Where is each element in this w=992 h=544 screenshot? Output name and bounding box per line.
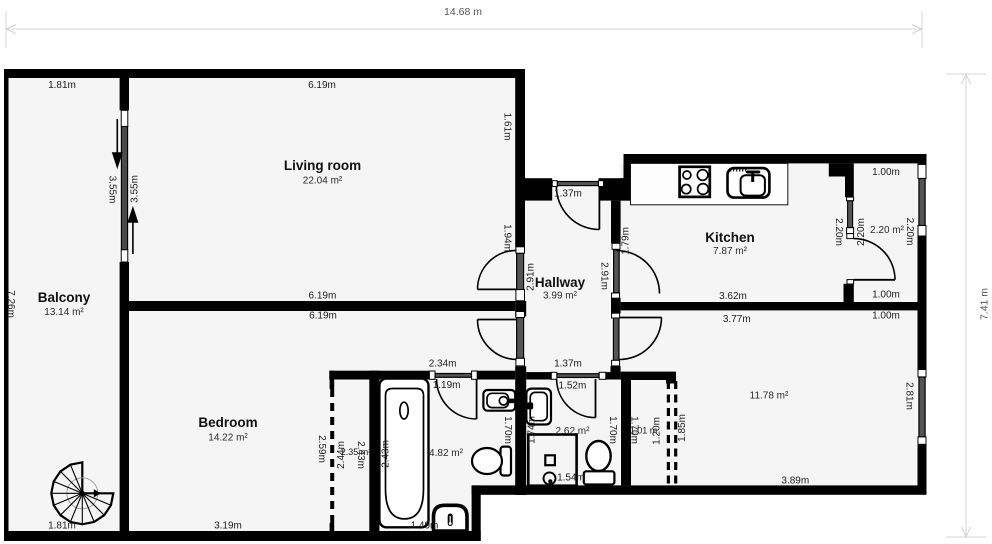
- svg-text:1.74m: 1.74m: [527, 416, 538, 444]
- svg-text:1.70m: 1.70m: [607, 416, 618, 444]
- svg-text:1.00m: 1.00m: [872, 290, 900, 301]
- svg-text:3.55m: 3.55m: [107, 176, 118, 204]
- svg-text:3.19m: 3.19m: [214, 521, 242, 532]
- svg-text:2.43m: 2.43m: [355, 441, 366, 469]
- svg-text:2.59m: 2.59m: [316, 435, 327, 463]
- svg-text:1.52m: 1.52m: [559, 380, 587, 391]
- svg-text:2.81m: 2.81m: [904, 382, 915, 410]
- svg-text:3.62m: 3.62m: [719, 291, 747, 302]
- svg-text:2.20m: 2.20m: [856, 218, 867, 246]
- svg-text:14.68 m: 14.68 m: [444, 6, 482, 18]
- svg-text:1.20m: 1.20m: [652, 417, 663, 445]
- svg-text:7.41 m: 7.41 m: [979, 288, 991, 320]
- svg-text:7.26m: 7.26m: [5, 290, 16, 318]
- svg-text:2.43m: 2.43m: [381, 440, 392, 468]
- svg-text:1.00m: 1.00m: [872, 311, 900, 322]
- svg-text:3.55m: 3.55m: [130, 175, 141, 203]
- svg-text:2.34m: 2.34m: [429, 359, 457, 370]
- svg-text:6.19m: 6.19m: [309, 311, 337, 322]
- svg-text:3.89m: 3.89m: [781, 476, 809, 487]
- svg-text:22.04 m²: 22.04 m²: [303, 176, 343, 187]
- svg-text:1.19m: 1.19m: [433, 380, 461, 391]
- svg-text:2.44m: 2.44m: [336, 441, 347, 469]
- svg-text:Kitchen: Kitchen: [705, 230, 755, 245]
- svg-text:1.61m: 1.61m: [502, 113, 513, 141]
- svg-text:7.87 m²: 7.87 m²: [713, 246, 748, 257]
- svg-text:2.91m: 2.91m: [599, 262, 610, 290]
- svg-text:3.77m: 3.77m: [723, 314, 751, 325]
- svg-text:6.19m: 6.19m: [309, 291, 337, 302]
- svg-text:11.78 m²: 11.78 m²: [750, 391, 789, 402]
- svg-text:14.22 m²: 14.22 m²: [208, 433, 248, 444]
- svg-text:1.70m: 1.70m: [502, 416, 513, 444]
- svg-text:1.70m: 1.70m: [629, 416, 640, 444]
- svg-text:1.81m: 1.81m: [48, 521, 76, 532]
- svg-text:3.99 m²: 3.99 m²: [543, 291, 578, 302]
- svg-text:2.20m: 2.20m: [833, 218, 844, 246]
- svg-text:2.20 m²: 2.20 m²: [870, 225, 905, 236]
- svg-text:1.85m: 1.85m: [677, 414, 688, 442]
- svg-text:2.20m: 2.20m: [904, 218, 915, 246]
- svg-text:Hallway: Hallway: [535, 275, 586, 290]
- svg-text:1.49m: 1.49m: [411, 521, 439, 532]
- svg-text:13.14 m²: 13.14 m²: [44, 307, 84, 318]
- svg-text:2.91m: 2.91m: [526, 263, 537, 291]
- svg-text:Balcony: Balcony: [38, 290, 91, 305]
- svg-text:1.37m: 1.37m: [554, 358, 582, 369]
- svg-text:1.79m: 1.79m: [621, 227, 632, 255]
- svg-text:1.94m: 1.94m: [502, 224, 513, 252]
- svg-text:2.62 m²: 2.62 m²: [556, 426, 591, 437]
- svg-text:Living room: Living room: [284, 158, 361, 173]
- svg-text:6.19m: 6.19m: [308, 80, 336, 91]
- svg-text:1.81m: 1.81m: [48, 80, 76, 91]
- svg-text:Bedroom: Bedroom: [198, 415, 257, 430]
- svg-text:1.00m: 1.00m: [872, 167, 900, 178]
- svg-text:4.82 m²: 4.82 m²: [429, 448, 464, 459]
- svg-text:1.54m: 1.54m: [557, 473, 585, 484]
- svg-text:1.37m: 1.37m: [554, 189, 582, 200]
